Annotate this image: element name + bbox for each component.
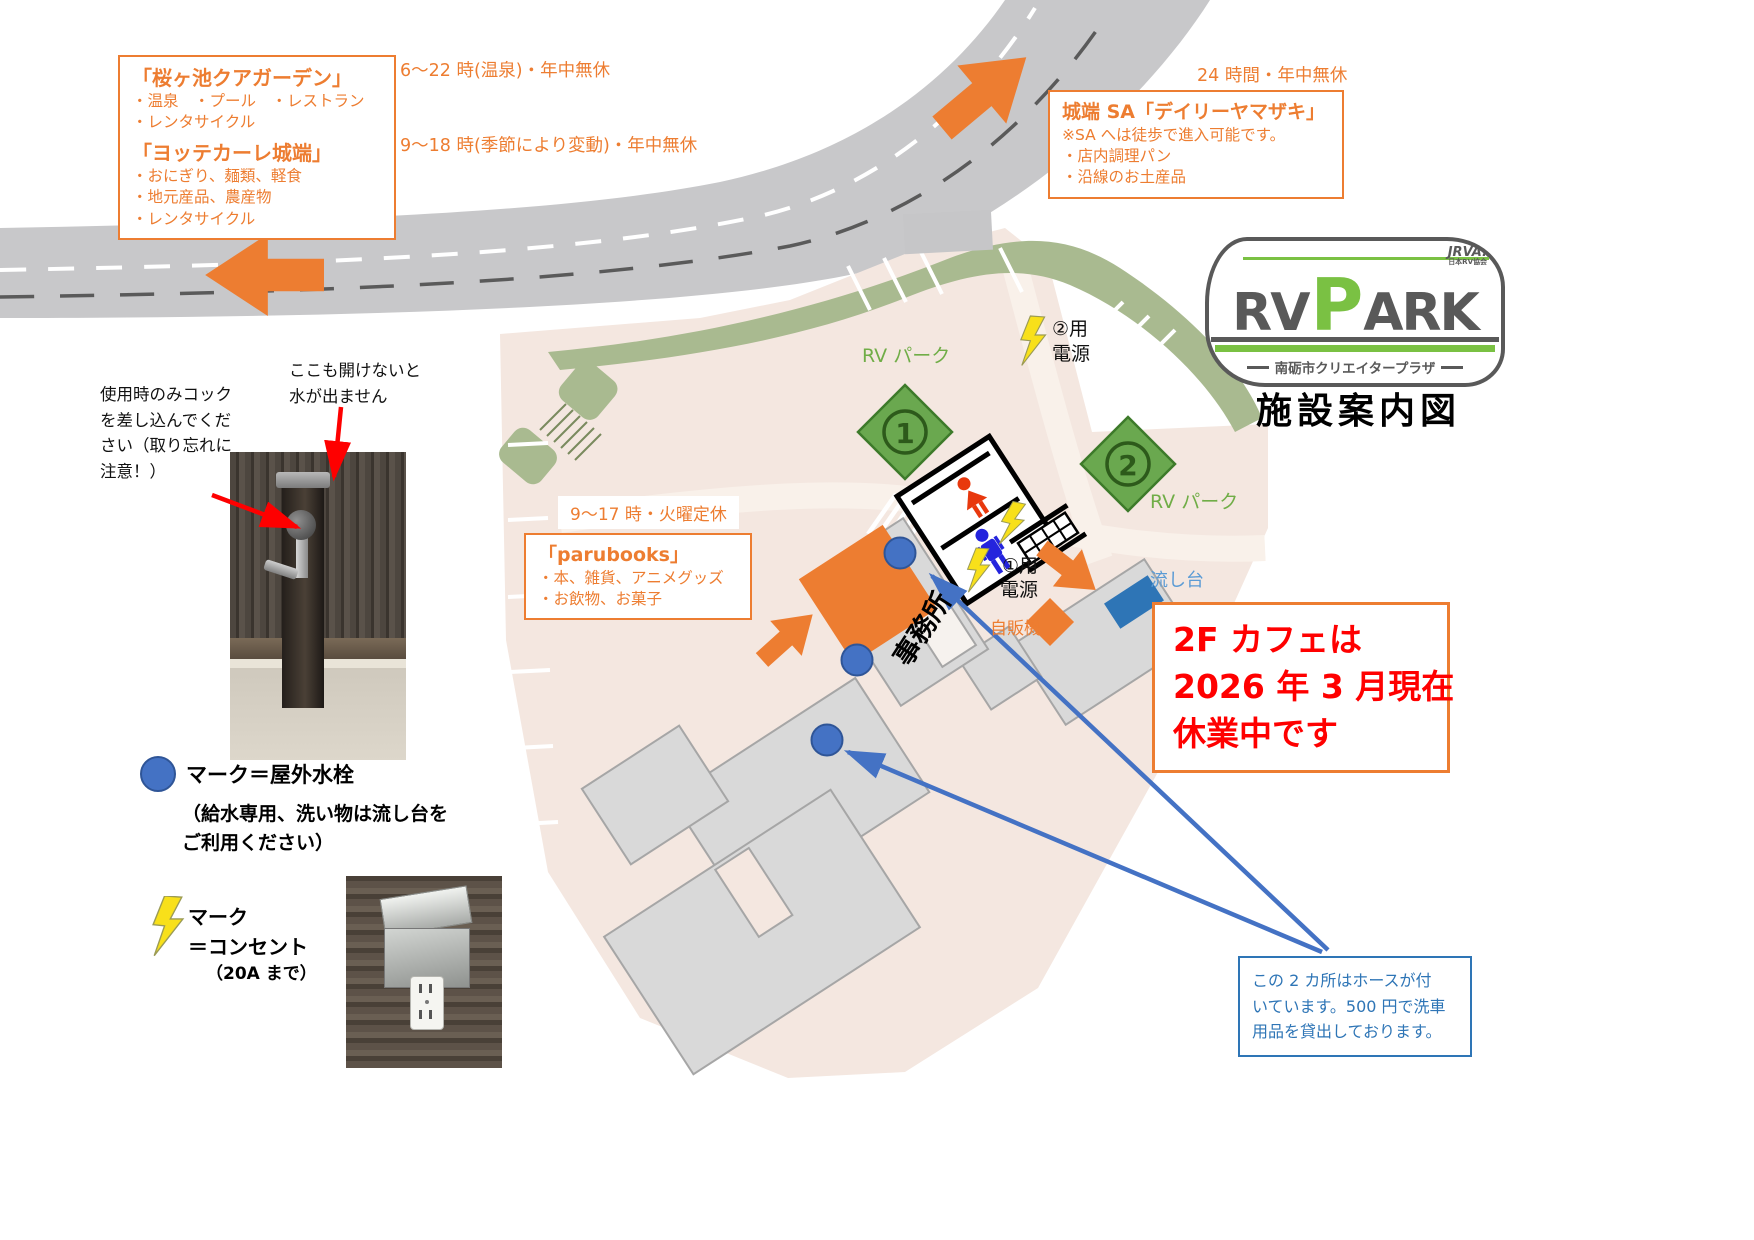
entry-se-arrow-icon (1027, 529, 1110, 608)
tap-post-cap (276, 472, 330, 488)
lightning-icon (998, 500, 1026, 547)
yottekare-hours: 9～18 時(季節により変動)・年中無休 (400, 132, 697, 157)
facility-map-page: 1 2 (0, 0, 1754, 1240)
yottekare-section: 「ヨッテカーレ城端」 ・おにぎり、麺類、軽食 ・地元産品、農産物 ・レンタサイク… (132, 140, 382, 230)
power1-label-line2: 電源 (1000, 579, 1038, 601)
legend-outlet: マーク ＝コンセント （20A まで） (188, 902, 317, 988)
walkway-stub (495, 357, 622, 489)
crosswalk-hatch (868, 494, 951, 534)
outlet-slot (429, 1010, 432, 1019)
green-belt (548, 241, 1262, 432)
logo-subtitle-dash (1247, 366, 1269, 369)
hose-note-line: この 2 カ所はホースが付 (1252, 968, 1458, 994)
cafe-closure-line: 休業中です (1173, 711, 1429, 758)
woman-icon (950, 472, 994, 522)
cafe-closure-line: 2F カフェは (1173, 617, 1429, 664)
yottekare-item: ・おにぎり、麺類、軽食 (132, 166, 382, 187)
hose-arrow-line (848, 752, 1322, 952)
legend-water-label: マーク＝屋外水栓 (186, 759, 354, 789)
exit-ne-arrow-icon (918, 28, 1051, 157)
legend-outlet-label2: ＝コンセント (188, 932, 317, 962)
yottekare-item: ・レンタサイクル (132, 209, 382, 230)
rv-park-logo: JRVA. 日本RV協会 RVPARK 南砺市クリエイタープラザ (1205, 237, 1505, 387)
hose-note-line: 用品を貸出しております。 (1252, 1019, 1458, 1045)
logo-black-line (1211, 337, 1499, 342)
legend-water-sub: （給水専用、洗い物は流し台を ご利用ください） (182, 800, 448, 859)
exit-left-arrow-icon (205, 234, 324, 316)
legend-outlet-amp: （20A まで） (188, 962, 317, 988)
stub-hatch (540, 404, 601, 460)
stairs-icon (1010, 505, 1086, 571)
power2-label-line2: 電源 (1052, 343, 1090, 365)
toilet-building (897, 436, 1059, 603)
sink-label: 流し台 (1150, 570, 1204, 591)
logo-subtitle-row: 南砺市クリエイタープラザ (1209, 357, 1501, 377)
legend-outlet-label: マーク (188, 902, 317, 932)
water-tap-circle (885, 538, 916, 569)
page-title: 施設案内図 (1256, 382, 1461, 434)
tap-valve-knob (286, 510, 316, 540)
outlet-screw (425, 1000, 429, 1004)
tap-note-left-line: を差し込んでくだ (100, 408, 232, 434)
tap-note-left: 使用時のみコック を差し込んでくだ さい（取り忘れに 注意！） (100, 382, 232, 484)
courtyard-notch (715, 848, 792, 937)
outlet-slot (419, 1010, 422, 1019)
parubooks-title: 「parubooks」 (538, 543, 738, 568)
sa-hours: 24 時間・年中無休 (1197, 62, 1347, 87)
tap-note-left-line: さい（取り忘れに (100, 433, 232, 459)
tap-note-left-line: 注意！） (100, 459, 232, 485)
rv-spot-2-number: 2 (1118, 449, 1137, 482)
logo-rv: RV (1232, 283, 1308, 343)
logo-p: P (1310, 263, 1361, 347)
cafe-closure-box: 2F カフェは 2026 年 3 月現在 休業中です (1152, 602, 1450, 773)
building-mid (959, 627, 1042, 710)
quagarden-item: ・レンタサイクル (132, 112, 382, 133)
outlet-slot (429, 984, 432, 993)
quagarden-title: 「桜ヶ池クアガーデン」 (132, 65, 382, 91)
sa-item: ・店内調理パン (1062, 146, 1330, 167)
info-box-facilities: 「桜ヶ池クアガーデン」 ・温泉 ・プール ・レストラン ・レンタサイクル 「ヨッ… (118, 55, 396, 240)
power2-label-line1: ②用 (1052, 318, 1088, 340)
entry-nw-arrow-icon (746, 597, 828, 678)
parubooks-item: ・本、雑貨、アニメグッズ (538, 568, 738, 589)
parubooks-hours: 9～17 時・火曜定休 (558, 496, 739, 529)
legend-water-sub-line: ご利用ください） (182, 829, 448, 858)
office-notch (911, 596, 976, 666)
sa-note: ※SA へは徒歩で進入可能です。 (1062, 125, 1330, 146)
man-icon (968, 523, 1015, 577)
cafe-closure-line: 2026 年 3 月現在 (1173, 664, 1429, 711)
info-box-parubooks: 「parubooks」 ・本、雑貨、アニメグッズ ・お飲物、お菓子 (524, 533, 752, 620)
hose-note-box: この 2 カ所はホースが付 いています。500 円で洗車 用品を貸出しております… (1238, 956, 1472, 1057)
logo-wordmark: RVPARK (1209, 263, 1501, 347)
water-tap-legend-icon (140, 756, 176, 792)
tap-note-left-line: 使用時のみコック (100, 382, 232, 408)
legend-water: マーク＝屋外水栓 (140, 756, 354, 792)
site-path (1012, 255, 1100, 560)
shop-building-orange (799, 525, 937, 663)
info-box-sa: 城端 SA「デイリーヤマザキ」 ※SA へは徒歩で進入可能です。 ・店内調理パン… (1048, 90, 1344, 199)
logo-ark: ARK (1363, 283, 1478, 343)
quagarden-hours: 6～22 時(温泉)・年中無休 (400, 57, 610, 82)
tap-note-right-line: ここも開けないと (289, 358, 421, 384)
parubooks-item: ・お飲物、お菓子 (538, 589, 738, 610)
vending-label: 自販機 (990, 619, 1041, 639)
power1-label-line1: ①用 (1002, 555, 1038, 577)
outlet-plate (410, 976, 444, 1030)
logo-green-bar (1215, 345, 1495, 352)
rv-spot-1-diamond: 1 (858, 385, 952, 479)
sa-title: 城端 SA「デイリーヤマザキ」 (1062, 100, 1330, 125)
legend-water-sub-line: （給水専用、洗い物は流し台を (182, 800, 448, 829)
rv-park-label-2: RV パーク (1150, 491, 1238, 513)
water-tap-photo (230, 452, 406, 760)
rv-spot-1-number: 1 (895, 417, 914, 450)
sa-item: ・沿線のお土産品 (1062, 167, 1330, 188)
tap-note-right: ここも開けないと 水が出ません (289, 358, 421, 409)
outlet-photo (346, 876, 502, 1068)
outlet-slot (419, 984, 422, 993)
logo-subtitle-dash (1441, 366, 1463, 369)
water-tap-circle (842, 645, 873, 676)
office-label: 事務所 (888, 587, 958, 672)
quagarden-section: 「桜ヶ池クアガーデン」 ・温泉 ・プール ・レストラン ・レンタサイクル (132, 65, 382, 134)
lightning-icon (968, 548, 990, 592)
lightning-icon (1021, 316, 1046, 365)
building-office (816, 518, 988, 705)
vending-diamond (1026, 598, 1074, 646)
quagarden-item: ・温泉 ・プール ・レストラン (132, 91, 382, 112)
water-tap-circle (812, 725, 843, 756)
hose-note-line: いています。500 円で洗車 (1252, 994, 1458, 1020)
tap-note-right-line: 水が出ません (289, 384, 421, 410)
shed-building (903, 210, 993, 255)
logo-subtitle: 南砺市クリエイタープラザ (1275, 357, 1436, 377)
yottekare-item: ・地元産品、農産物 (132, 187, 382, 208)
yottekare-title: 「ヨッテカーレ城端」 (132, 140, 382, 166)
rv-spot-2-diamond: 2 (1081, 417, 1175, 511)
rv-park-label-1: RV パーク (862, 345, 950, 367)
lightning-legend-icon (148, 896, 188, 958)
